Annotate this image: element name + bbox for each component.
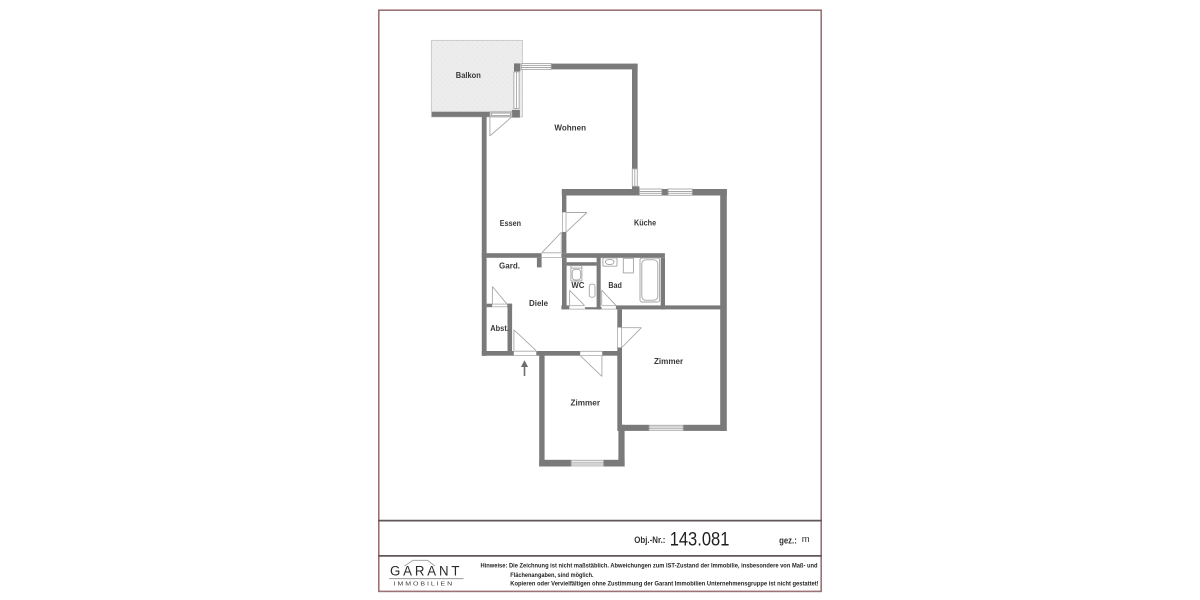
svg-text:Gard.: Gard. — [499, 261, 520, 271]
svg-text:Zimmer: Zimmer — [654, 356, 684, 366]
svg-text:143.081: 143.081 — [670, 528, 730, 550]
svg-text:WC: WC — [571, 280, 585, 290]
svg-text:gez.:: gez.: — [779, 536, 797, 547]
svg-text:Abst.: Abst. — [490, 323, 509, 333]
svg-text:Hinweise: Die Zeichnung ist ni: Hinweise: Die Zeichnung ist nicht maßstä… — [481, 562, 818, 569]
svg-text:Zimmer: Zimmer — [571, 397, 601, 407]
svg-text:Essen: Essen — [500, 218, 521, 228]
svg-text:Balkon: Balkon — [456, 70, 481, 80]
svg-text:Wohnen: Wohnen — [554, 123, 586, 133]
svg-text:IMMOBILIEN: IMMOBILIEN — [394, 581, 455, 587]
svg-text:Obj.-Nr.:: Obj.-Nr.: — [634, 535, 665, 546]
svg-text:GARANT: GARANT — [390, 564, 462, 579]
svg-text:Diele: Diele — [529, 298, 548, 308]
svg-text:Kopieren oder Vervielfältigen: Kopieren oder Vervielfältigen ohne Zusti… — [510, 581, 818, 588]
svg-text:Küche: Küche — [634, 218, 656, 228]
svg-text:Flächenangaben, sind möglich.: Flächenangaben, sind möglich. — [510, 572, 593, 579]
svg-text:Bad: Bad — [608, 280, 622, 290]
svg-text:m: m — [802, 534, 810, 545]
